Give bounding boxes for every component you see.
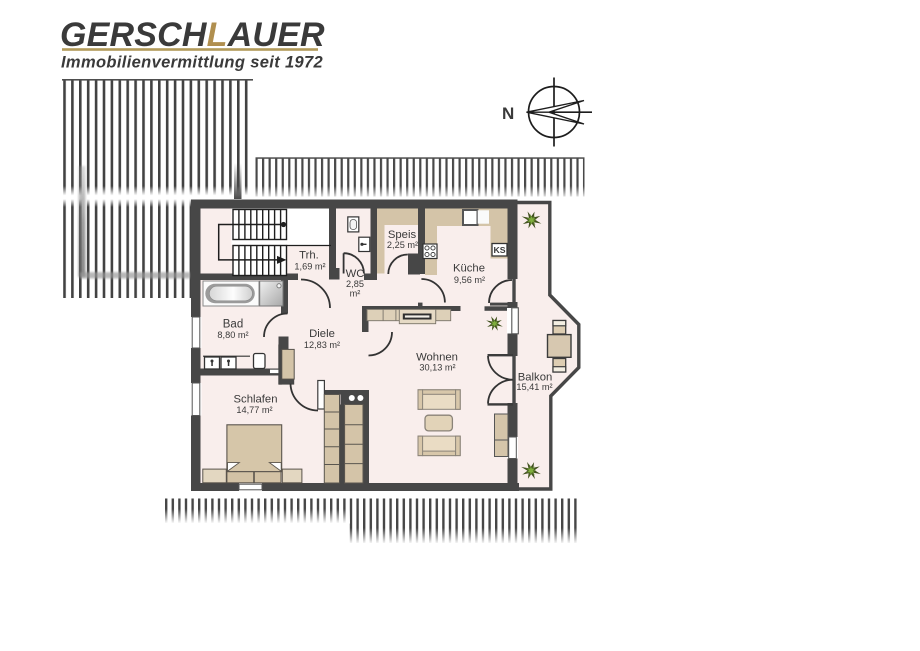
svg-text:Trh.: Trh. xyxy=(299,250,319,262)
svg-text:15,41 m²: 15,41 m² xyxy=(516,382,552,392)
svg-text:KS: KS xyxy=(493,245,505,255)
svg-text:2,85: 2,85 xyxy=(346,279,364,289)
svg-text:Immobilienvermittlung seit 197: Immobilienvermittlung seit 1972 xyxy=(61,54,323,72)
svg-text:2,25 m²: 2,25 m² xyxy=(387,240,418,250)
svg-text:1,69 m²: 1,69 m² xyxy=(294,262,325,272)
svg-text:Schlafen: Schlafen xyxy=(234,394,278,406)
svg-text:9,56 m²: 9,56 m² xyxy=(454,275,485,285)
svg-text:30,13 m²: 30,13 m² xyxy=(419,363,455,373)
svg-text:N: N xyxy=(502,104,514,123)
svg-text:12,83 m²: 12,83 m² xyxy=(304,340,340,350)
svg-text:m²: m² xyxy=(350,289,361,299)
svg-text:8,80 m²: 8,80 m² xyxy=(217,330,248,340)
svg-text:14,77 m²: 14,77 m² xyxy=(236,405,272,415)
svg-text:Diele: Diele xyxy=(309,328,335,340)
svg-text:Bad: Bad xyxy=(223,319,243,331)
svg-text:Küche: Küche xyxy=(453,263,485,275)
